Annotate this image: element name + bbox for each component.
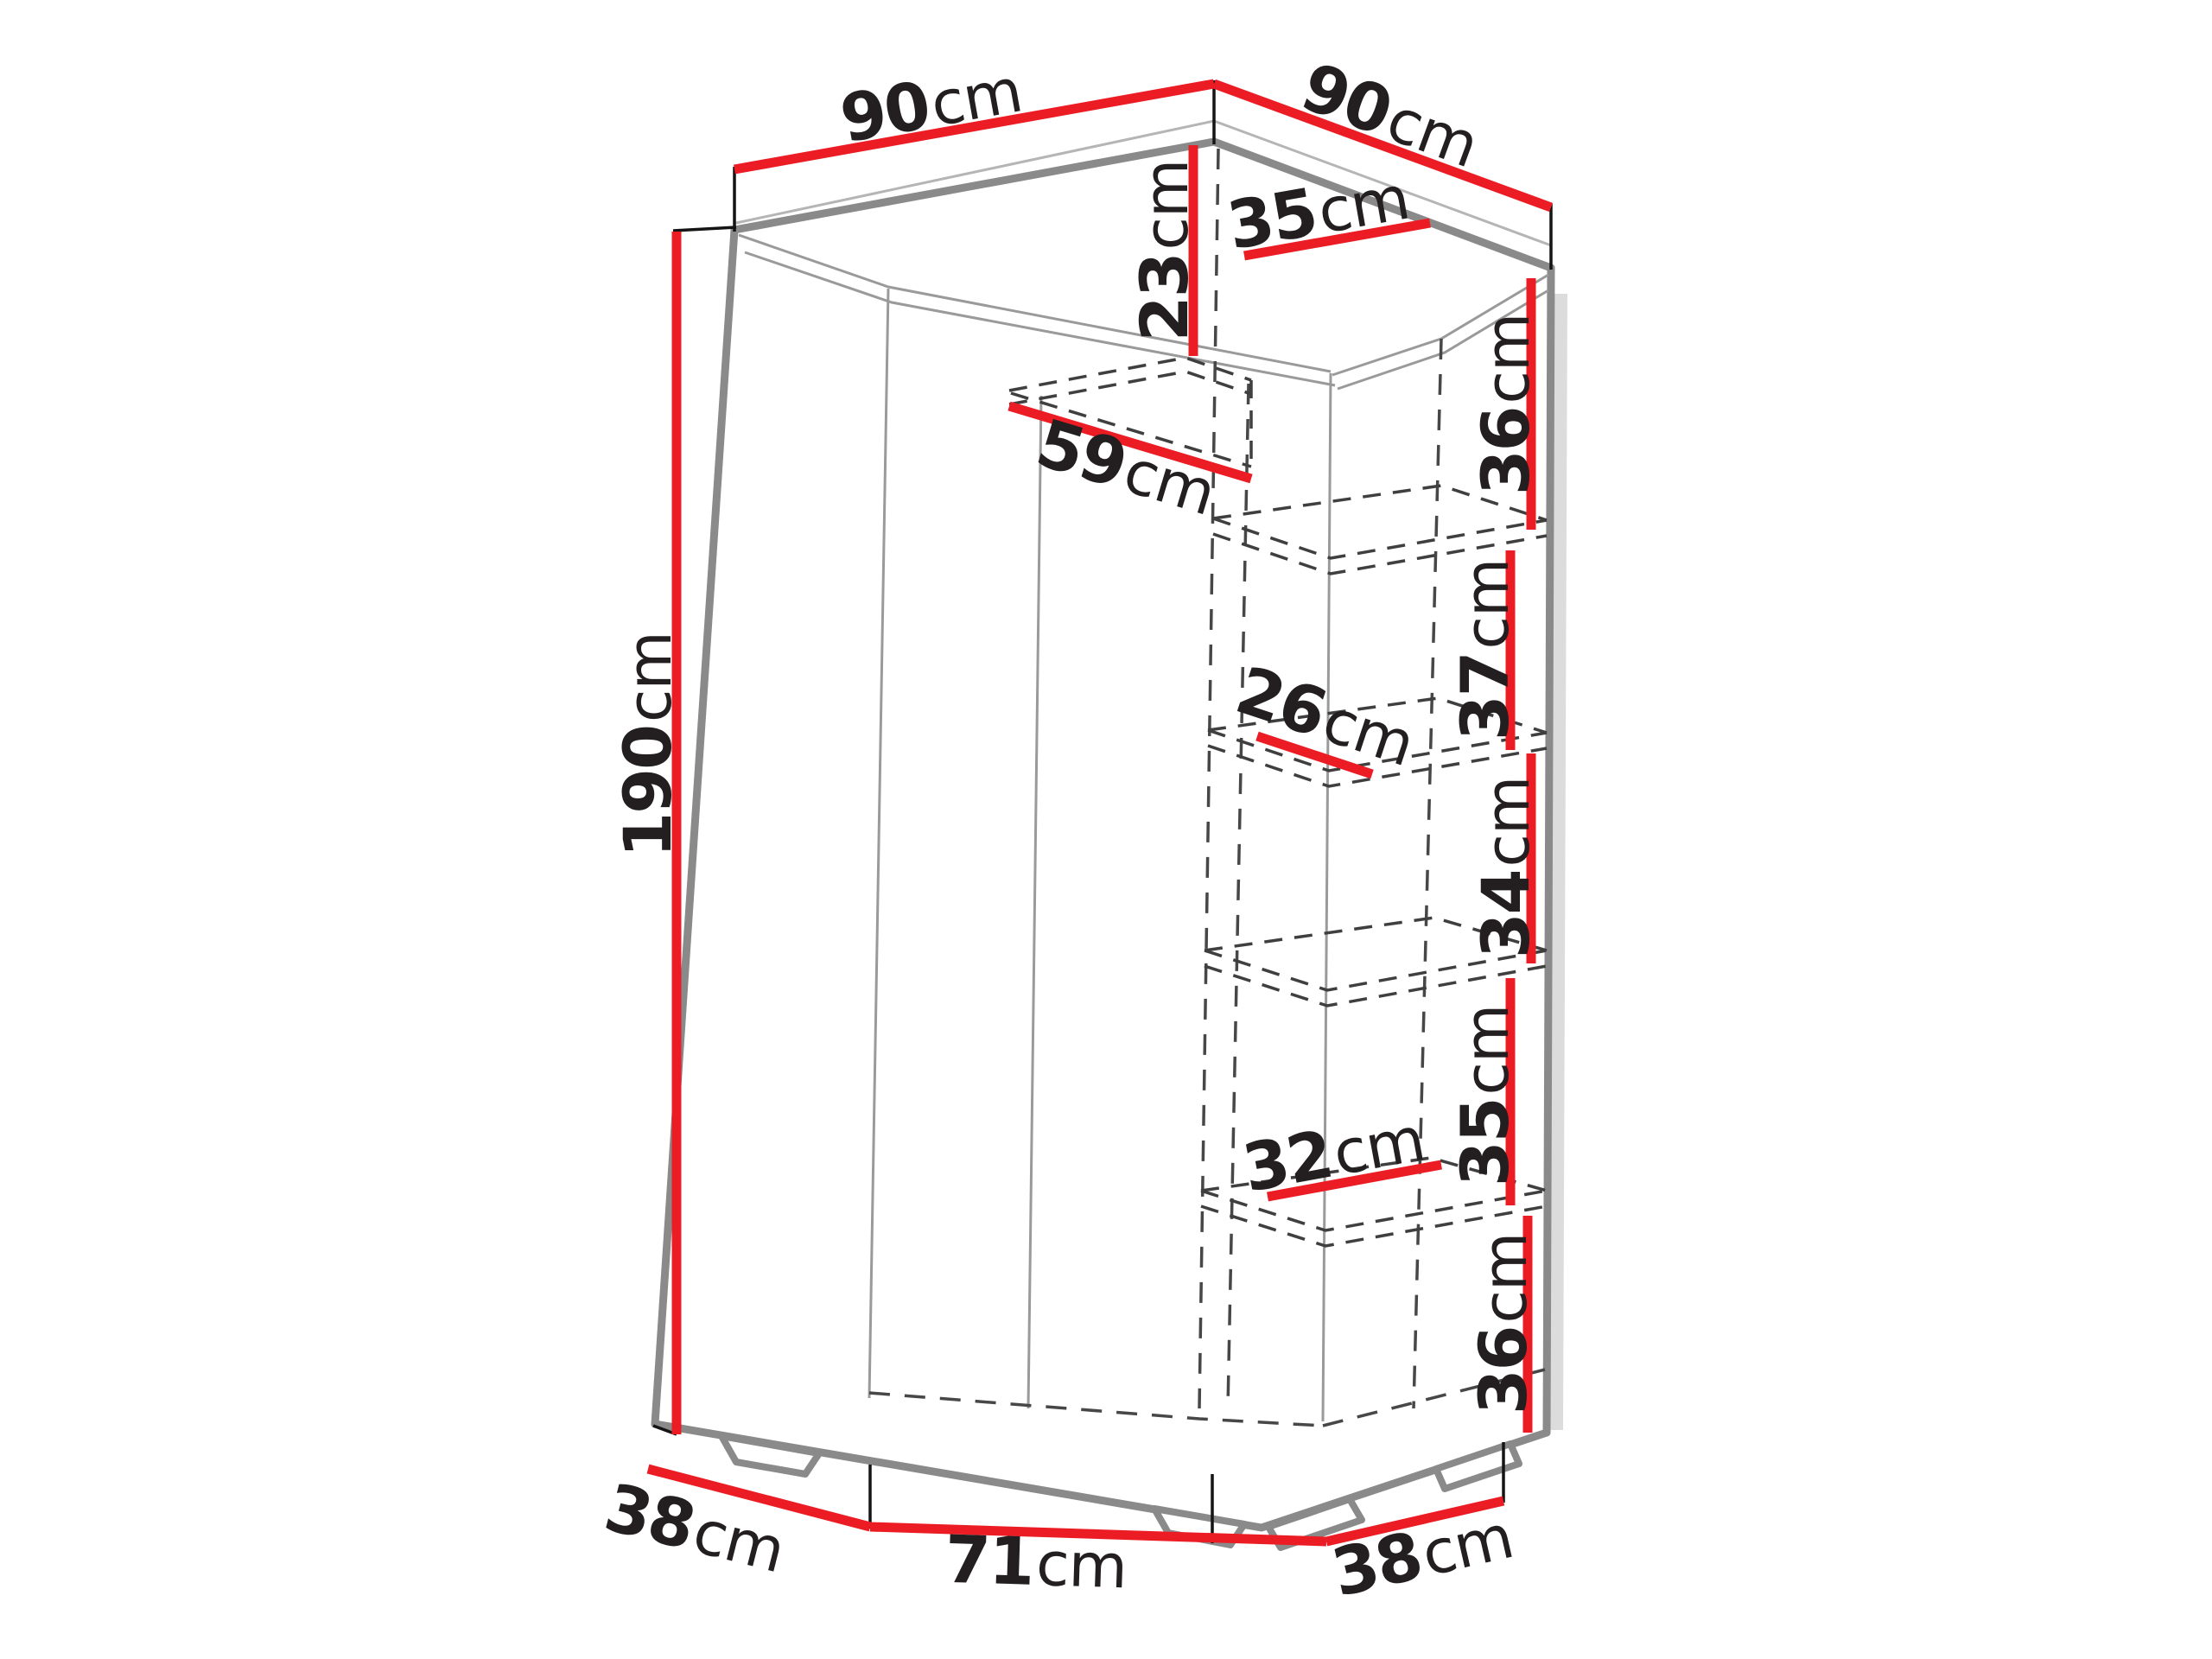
label-shelf-gap-5: 36cm bbox=[1465, 1233, 1541, 1414]
label-shelf-gap-4: 35cm bbox=[1446, 1005, 1523, 1186]
label-shelf-gap-1: 36cm bbox=[1467, 314, 1544, 495]
label-total-height: 190cm bbox=[609, 632, 686, 857]
shelf-1-front bbox=[1213, 518, 1547, 558]
interior-panel-left bbox=[1028, 396, 1041, 1408]
foot-left bbox=[721, 1436, 819, 1474]
cabinet-shadow bbox=[1556, 294, 1560, 1430]
hidden-partition-edge-2 bbox=[1228, 384, 1249, 1408]
foot-right bbox=[1436, 1444, 1519, 1489]
shelf-3-thickness bbox=[1205, 966, 1547, 1006]
right-outer-edge bbox=[1547, 268, 1551, 1433]
bottom-front-edge bbox=[655, 1424, 1547, 1528]
label-top-shelf-depth-left: 59cm bbox=[1028, 404, 1224, 531]
label-shelf-gap-2: 37cm bbox=[1446, 559, 1523, 741]
label-base-depth-left: 38cm bbox=[598, 1468, 793, 1587]
interior-top-back-edge-left-2 bbox=[745, 252, 1335, 385]
hidden-corner-right bbox=[1414, 339, 1441, 1408]
interior-corner-center bbox=[1323, 373, 1331, 1421]
extension-lines bbox=[653, 80, 1551, 1543]
label-width-left: 90cm bbox=[835, 49, 1027, 157]
label-shelf-gap-3: 34cm bbox=[1467, 777, 1544, 958]
wardrobe-dimension-diagram: 90cm 90cm 23cm 35cm 59cm 36cm 37cm 26cm … bbox=[0, 0, 2212, 1659]
label-top-compartment-height: 23cm bbox=[1126, 160, 1203, 341]
dimension-lines bbox=[648, 84, 1551, 1541]
ext-height-top bbox=[673, 227, 736, 231]
interior-bottom-back-left bbox=[869, 1393, 1323, 1426]
diagram-canvas: 90cm 90cm 23cm 35cm 59cm 36cm 37cm 26cm … bbox=[0, 0, 2212, 1659]
interior-corner-left bbox=[869, 289, 888, 1398]
label-lower-shelf-depth: 32cm bbox=[1237, 1098, 1430, 1207]
dimension-labels: 90cm 90cm 23cm 35cm 59cm 36cm 37cm 26cm … bbox=[598, 48, 1544, 1611]
